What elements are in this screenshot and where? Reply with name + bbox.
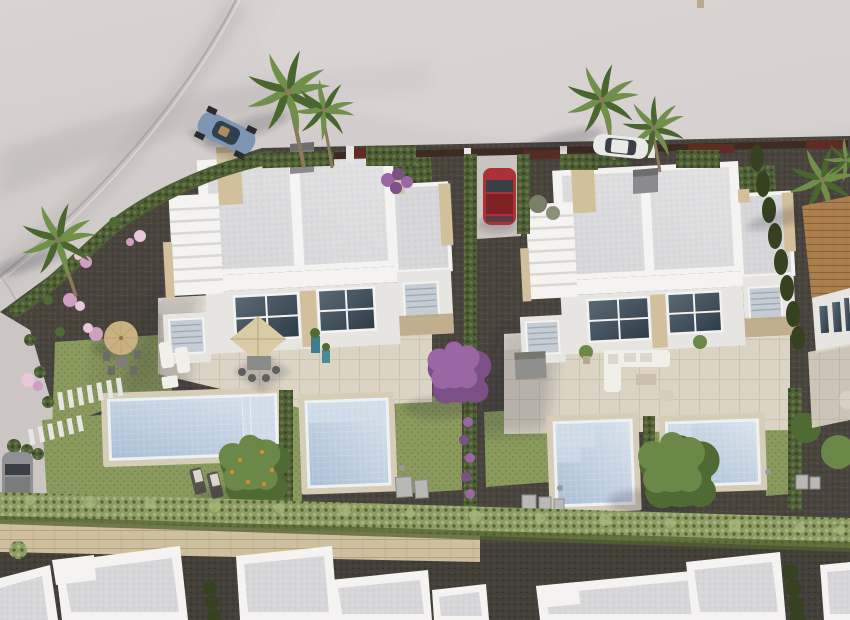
neighbor-wall [812,288,850,353]
driveway [477,150,521,239]
bush [9,541,27,559]
garden-lamp [399,465,405,471]
red-car [477,168,517,232]
neighbor-terrace [808,344,850,428]
pool-b [298,391,397,494]
outdoor-kitchen-box [514,351,546,380]
render-image: Aerial 3D render of a residential develo… [0,0,850,620]
aerial-render-svg: Aerial 3D render of a residential develo… [0,0,850,620]
garden-lamp [557,485,563,491]
garden-lamp [765,469,771,475]
hedge-driveway-east [517,154,530,234]
hedge-east-boundary [788,388,802,510]
